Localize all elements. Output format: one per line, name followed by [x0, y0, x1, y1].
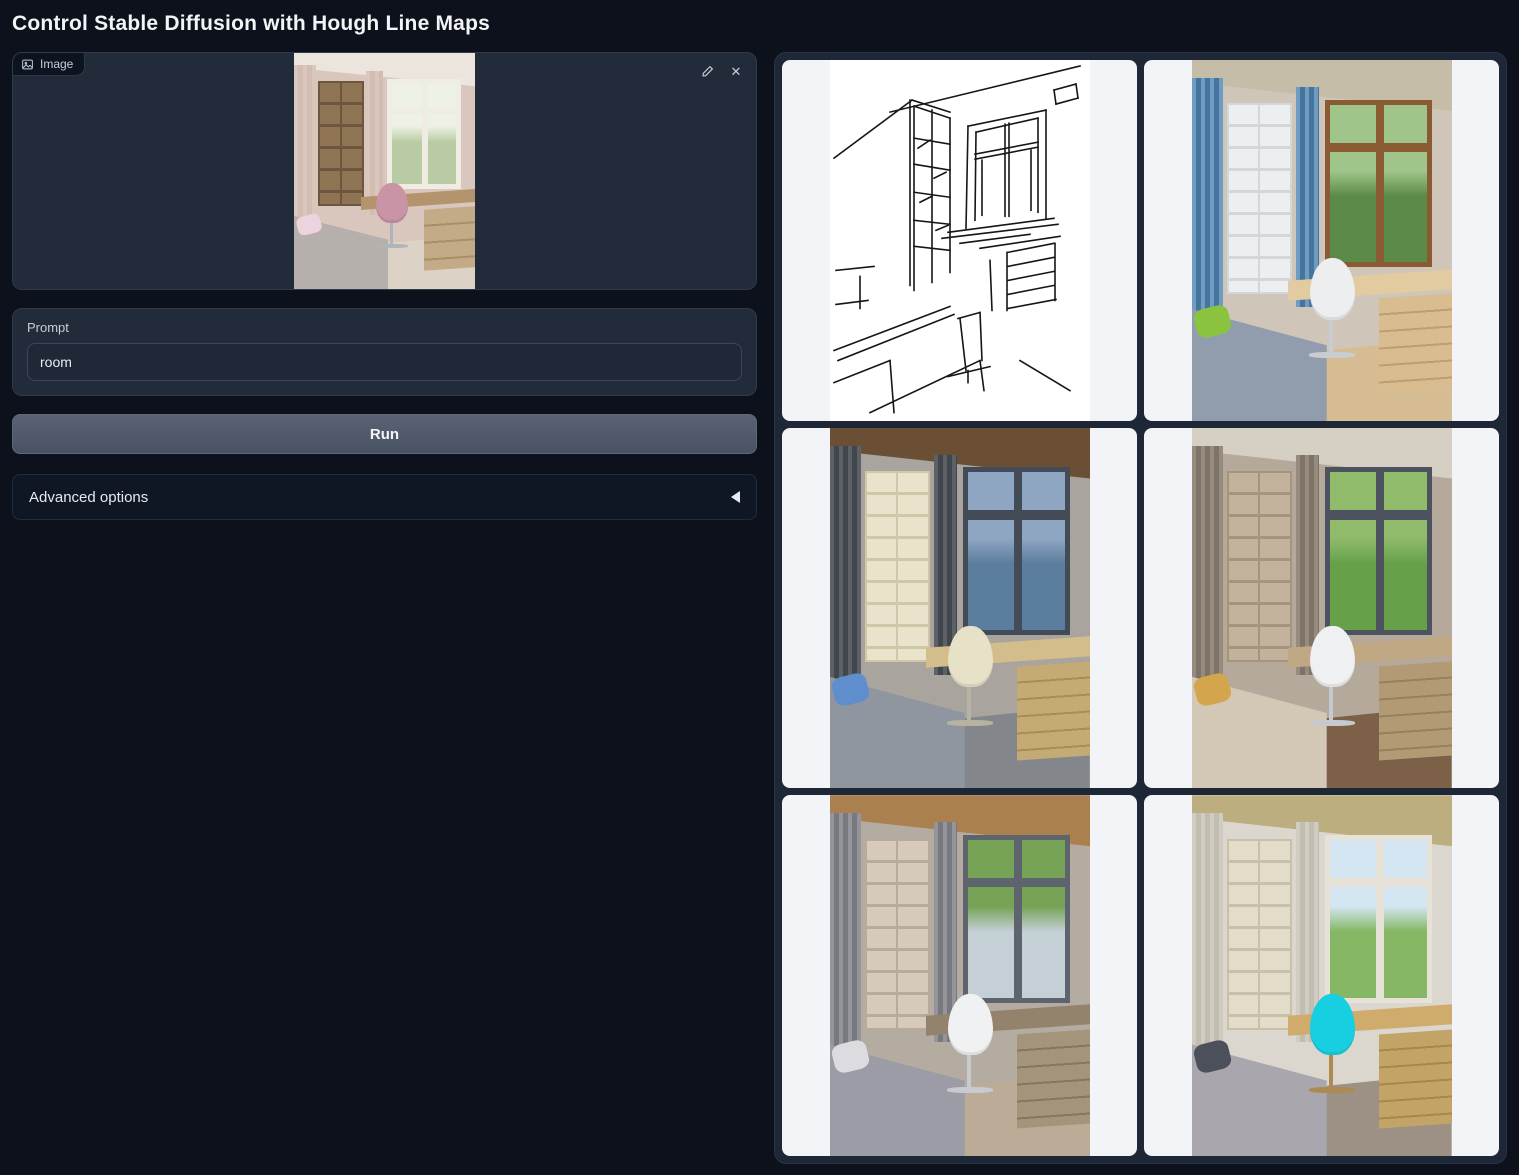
input-column: Image ✕ [12, 52, 757, 520]
run-button[interactable]: Run [12, 414, 757, 454]
room-bookshelf [318, 81, 363, 206]
generated-room-1-image-holder [1192, 60, 1452, 421]
room-window [1325, 100, 1432, 268]
room-chair-post [1329, 684, 1333, 724]
room-chair-post [967, 684, 971, 724]
generated-room-2-image-holder [830, 428, 1090, 789]
generated-room-image [1192, 795, 1452, 1156]
prompt-input[interactable] [27, 343, 742, 381]
room-window [387, 79, 461, 189]
room-bookshelf [1227, 839, 1292, 1030]
room-window [963, 835, 1070, 1003]
room-chair [948, 626, 994, 687]
room-bookshelf [865, 839, 930, 1030]
room-chair-base [947, 720, 994, 726]
room-chair-base [375, 244, 408, 248]
generated-room-image [830, 795, 1090, 1156]
advanced-options-accordion[interactable]: Advanced options [12, 474, 757, 520]
pencil-icon [701, 64, 715, 78]
room-bookshelf [1227, 471, 1292, 662]
generated-room-image [1192, 60, 1452, 421]
generated-room-3-image-holder [1192, 428, 1452, 789]
prompt-label: Prompt [27, 320, 742, 335]
room-curtain-left [1192, 78, 1223, 312]
image-preview-wrap [13, 53, 756, 289]
gallery-item-hough-line-map[interactable] [782, 60, 1137, 421]
hough-line-map-image-holder [830, 60, 1090, 421]
room-chair-base [1309, 720, 1356, 726]
room-chair-post [1329, 316, 1333, 356]
room-drawers [1017, 1029, 1090, 1128]
room-chair [1310, 626, 1356, 687]
room-drawers [424, 206, 475, 271]
generated-room-5-image-holder [1192, 795, 1452, 1156]
triangle-left-icon [731, 491, 740, 503]
app-page: Control Stable Diffusion with Hough Line… [0, 0, 1519, 1172]
generated-room-4-image-holder [830, 795, 1090, 1156]
image-input-label-badge: Image [13, 53, 85, 76]
room-bookshelf [865, 471, 930, 662]
prompt-block: Prompt [12, 308, 757, 396]
room-drawers [1017, 661, 1090, 760]
image-actions: ✕ [696, 59, 748, 83]
page-title: Control Stable Diffusion with Hough Line… [12, 12, 1507, 36]
gallery-grid [782, 60, 1499, 1156]
room-drawers [1379, 294, 1452, 393]
room-window [963, 467, 1070, 635]
generated-room-image [1192, 428, 1452, 789]
output-gallery [774, 52, 1507, 1164]
room-curtain-left [294, 65, 316, 218]
uploaded-room-image [294, 53, 475, 289]
room-chair-base [1309, 1087, 1356, 1093]
gallery-item-generated-room-2[interactable] [782, 428, 1137, 789]
gallery-item-generated-room-3[interactable] [1144, 428, 1499, 789]
room-drawers [1379, 1029, 1452, 1128]
room-chair-post [967, 1051, 971, 1091]
room-window [1325, 467, 1432, 635]
image-input-label: Image [40, 57, 73, 71]
room-curtain-left [830, 813, 861, 1047]
room-curtain-left [1192, 446, 1223, 680]
main-columns: Image ✕ [12, 52, 1507, 1164]
room-drawers [1379, 661, 1452, 760]
room-window [1325, 835, 1432, 1003]
room-chair-base [1309, 352, 1356, 358]
gallery-item-generated-room-1[interactable] [1144, 60, 1499, 421]
image-icon [21, 58, 34, 71]
room-chair-post [390, 221, 393, 247]
gallery-item-generated-room-5[interactable] [1144, 795, 1499, 1156]
room-chair [376, 183, 408, 223]
generated-room-image [830, 428, 1090, 789]
room-bookshelf [1227, 103, 1292, 294]
room-chair [1310, 258, 1356, 319]
room-curtain-left [830, 446, 861, 680]
clear-image-button[interactable]: ✕ [724, 59, 748, 83]
hough-line-map-image [830, 60, 1090, 421]
room-chair-base [947, 1087, 994, 1093]
advanced-options-label: Advanced options [29, 489, 148, 506]
room-curtain-left [1192, 813, 1223, 1047]
x-icon: ✕ [731, 65, 742, 78]
edit-image-button[interactable] [696, 59, 720, 83]
image-input-dropzone[interactable]: Image ✕ [12, 52, 757, 290]
room-chair-post [1329, 1051, 1333, 1091]
gallery-item-generated-room-4[interactable] [782, 795, 1137, 1156]
uploaded-image-preview [294, 53, 475, 289]
